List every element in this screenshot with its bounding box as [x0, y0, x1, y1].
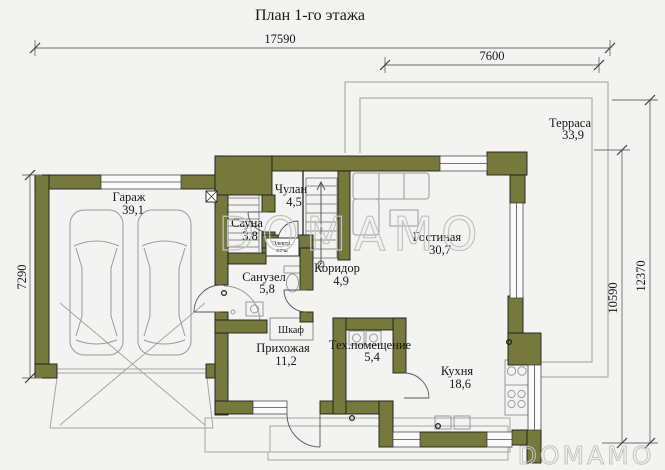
porch-step [268, 452, 508, 460]
room-label-kitchen: Кухня [441, 364, 474, 378]
garage-door-lines [57, 369, 206, 373]
floor-plan: Электр. печь 17590 7600 7290 10590 12370… [0, 0, 665, 470]
wall [510, 175, 525, 203]
room-area-tech: 5,4 [364, 350, 380, 364]
wall [487, 152, 527, 175]
page-title: План 1-го этажа [255, 7, 365, 24]
wall [272, 156, 440, 171]
window [393, 432, 420, 447]
dim-height-house: 10590 [606, 282, 620, 313]
room-label-closet: Чулан [275, 182, 308, 196]
room-area-bathroom: 5,8 [259, 282, 275, 296]
room-area-kitchen: 18,6 [449, 377, 471, 391]
room-label-hallway: Прихожая [256, 341, 310, 355]
wall [508, 296, 523, 337]
window [440, 156, 487, 171]
room-area-hallway: 11,2 [275, 354, 296, 368]
driveway-cross [60, 303, 205, 425]
car-right [138, 210, 191, 355]
wall [508, 333, 541, 365]
window [253, 401, 287, 414]
driveway [50, 378, 213, 428]
room-area-terrace: 33,9 [562, 128, 584, 142]
watermark-corner: DOMAMO [518, 441, 655, 470]
floor-plan-canvas: Электр. печь 17590 7600 7290 10590 12370… [0, 0, 665, 470]
dim-height-total: 12370 [634, 260, 648, 291]
wall [300, 312, 313, 322]
room-label-garage: Гараж [113, 190, 146, 204]
window [510, 203, 523, 298]
wall [215, 156, 272, 195]
symbol-dot [222, 291, 227, 296]
window [487, 432, 512, 447]
room-label-corridor: Коридор [314, 261, 360, 275]
window [528, 365, 541, 430]
wall [35, 175, 49, 378]
wall [379, 401, 393, 447]
watermark-center: DOMAMO [219, 207, 486, 261]
window [101, 175, 181, 189]
dim-height-garage: 7290 [15, 265, 29, 290]
wall [35, 364, 57, 378]
dim-width-terrace: 7600 [480, 49, 505, 63]
door-garage [194, 285, 221, 312]
room-area-garage: 39,1 [122, 203, 144, 217]
wall [215, 320, 267, 333]
dim-width-total: 17590 [264, 32, 295, 46]
vent-shaft-icon [206, 191, 217, 202]
wall [420, 432, 487, 447]
wardrobe-label: Шкаф [278, 325, 304, 336]
room-area-corridor: 4,9 [333, 274, 349, 288]
door-entrance [287, 414, 320, 447]
wall [215, 401, 253, 414]
wall [333, 318, 346, 414]
